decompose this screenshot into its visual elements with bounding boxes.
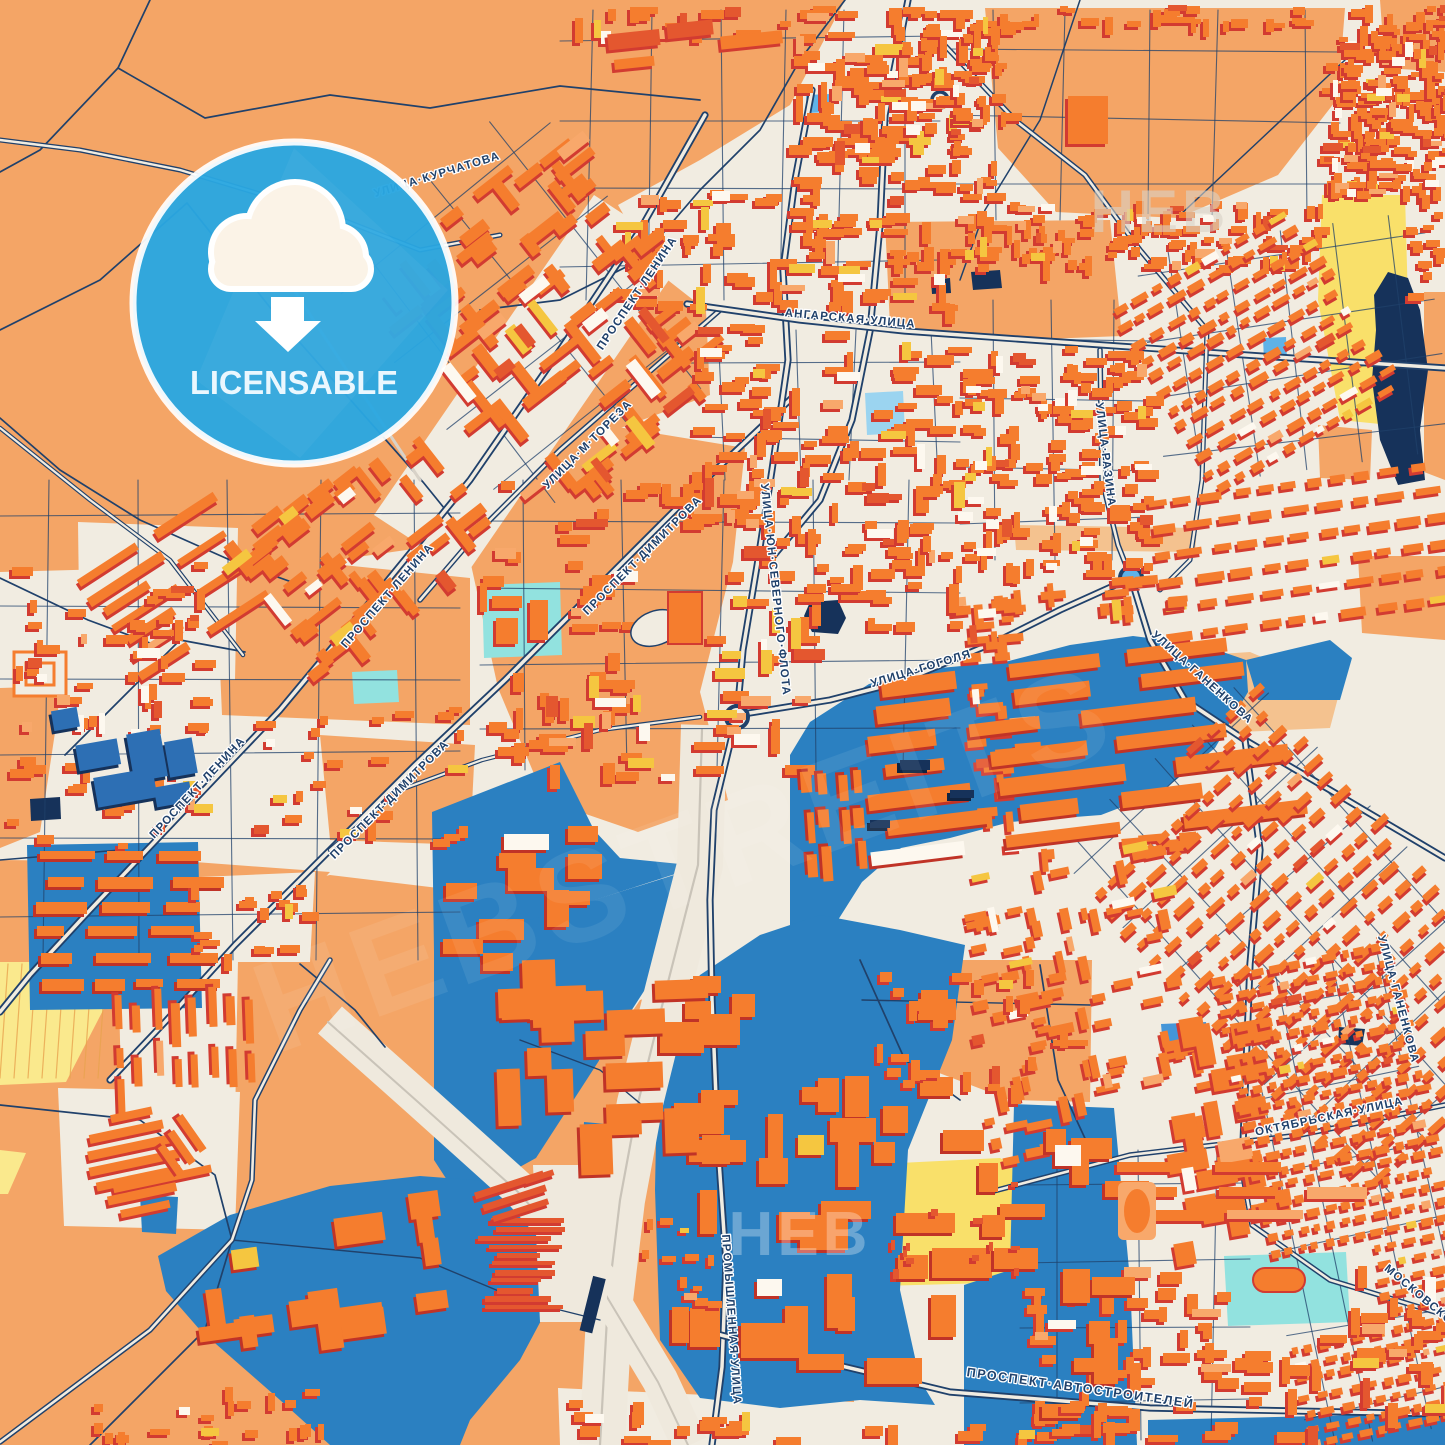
svg-text:HEB: HEB: [1091, 178, 1230, 245]
svg-text:HEB: HEB: [729, 1200, 872, 1269]
svg-text:LICENSABLE: LICENSABLE: [190, 364, 398, 401]
